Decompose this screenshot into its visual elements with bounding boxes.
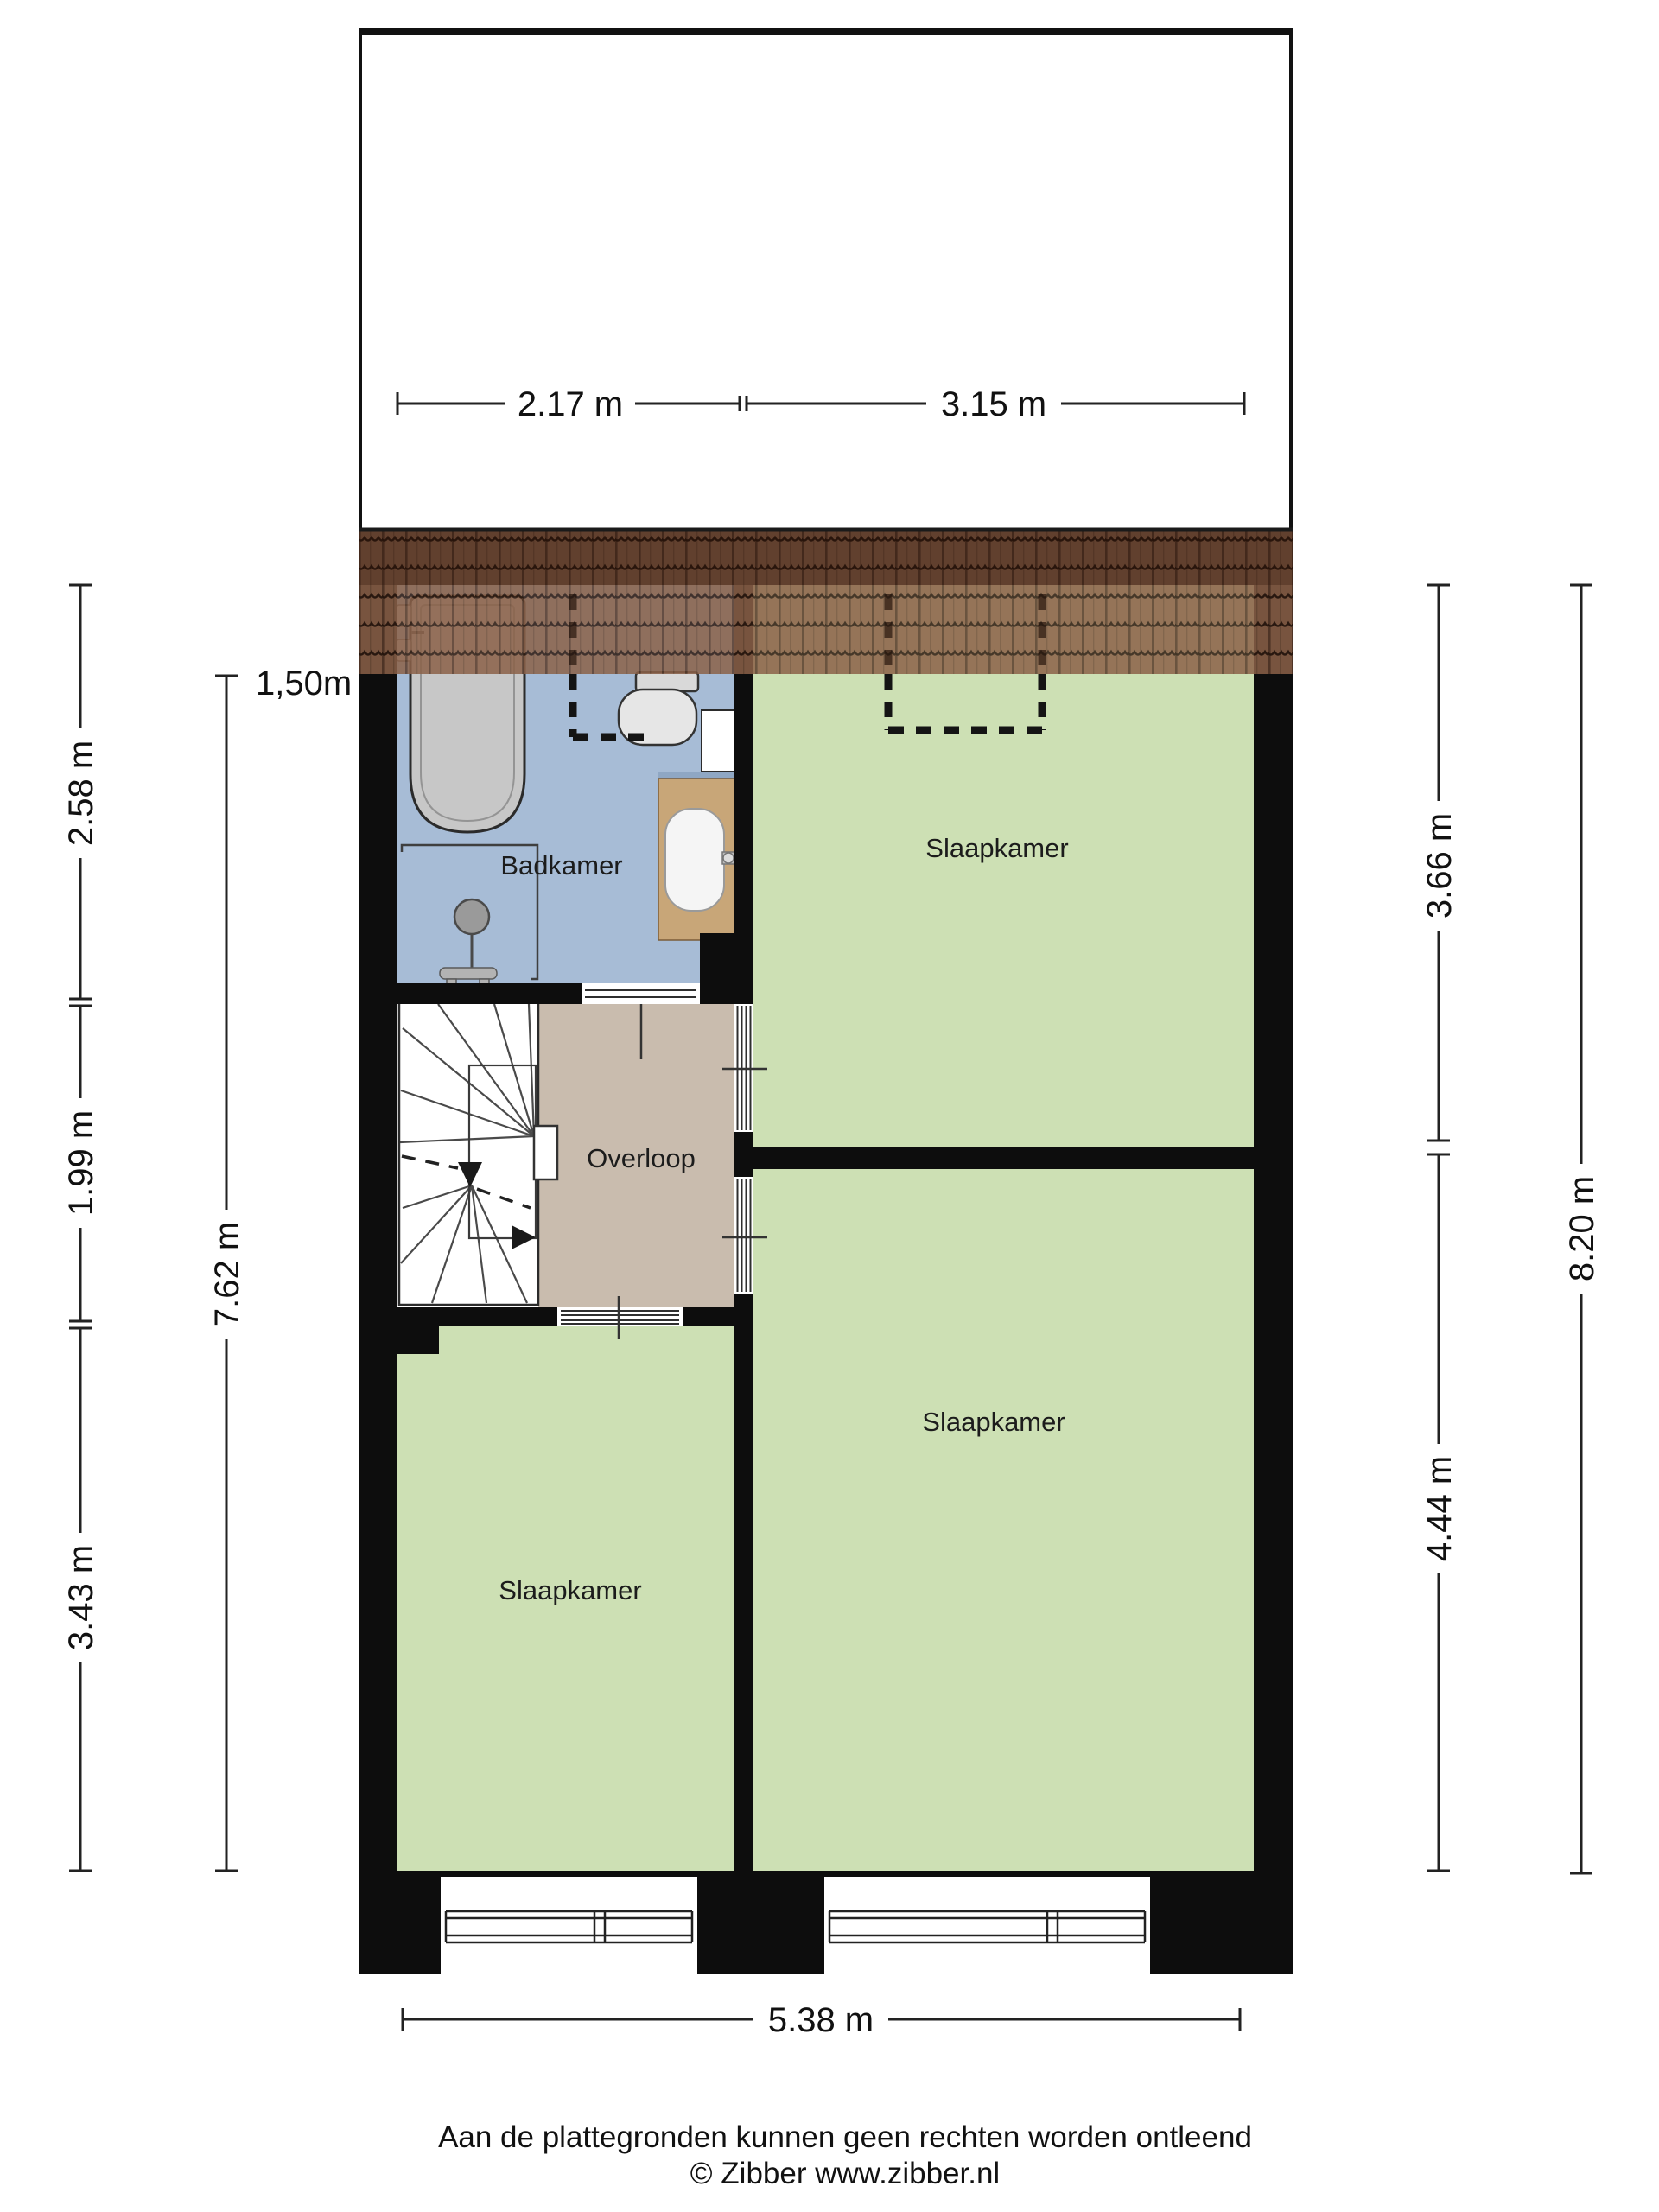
- footer-credit: © Zibber www.zibber.nl: [690, 2157, 1000, 2190]
- wall-exterior-east: [1254, 531, 1293, 1974]
- dim-left-landing: 1.99 m: [62, 1110, 100, 1216]
- roof-upper-shade: [359, 531, 1293, 585]
- room-bedroom-bottom-right-floor: [753, 1169, 1254, 1871]
- top-block-fill: [359, 28, 1293, 531]
- wall-bathroom-corner-block: [700, 933, 753, 983]
- bathroom-niche: [702, 710, 734, 772]
- room-label-bedroom-bottom-left: Slaapkamer: [499, 1575, 641, 1605]
- window-bottom-right: [824, 1877, 1150, 1974]
- dim-bottom-total: 5.38 m: [768, 2001, 874, 2039]
- room-label-bedroom-top-right: Slaapkamer: [925, 833, 1068, 863]
- dim-right-bedroom-bottom: 4.44 m: [1421, 1456, 1459, 1561]
- wall-between-bottom-bedrooms: [734, 1294, 753, 1871]
- wall-bathroom-south: [397, 983, 753, 1004]
- floorplan-canvas: Badkamer Slaapkamer Overloop Slaapkamer …: [0, 0, 1659, 2212]
- dim-right-total: 8.20 m: [1563, 1176, 1601, 1281]
- stair-landing-door: [534, 1126, 557, 1179]
- wall-between-right-bedrooms: [734, 1147, 1254, 1169]
- dim-left-bathroom: 2.58 m: [62, 741, 100, 846]
- dim-left-total: 7.62 m: [208, 1222, 246, 1327]
- wall-notch-block: [397, 1307, 439, 1354]
- roof-strip: [359, 530, 1293, 674]
- dim-top-right: 3.15 m: [941, 385, 1046, 423]
- dim-left-bedroom: 3.43 m: [62, 1545, 100, 1650]
- window-bottom-left: [441, 1877, 697, 1974]
- sink-vanity-icon: [658, 772, 735, 940]
- roof-lower-band: [359, 585, 1293, 674]
- dim-top-left: 2.17 m: [518, 385, 623, 423]
- top-outline-block: [359, 28, 1293, 531]
- room-label-bathroom: Badkamer: [500, 850, 622, 880]
- room-label-landing: Overloop: [587, 1143, 696, 1173]
- dim-right-bedroom-top: 3.66 m: [1421, 813, 1459, 918]
- footer-disclaimer: Aan de plattegronden kunnen geen rechten…: [438, 2120, 1252, 2154]
- wall-exterior-west: [359, 531, 397, 1974]
- room-fills: [397, 585, 1254, 1871]
- room-label-bedroom-bottom-right: Slaapkamer: [922, 1407, 1065, 1437]
- floorplan-page: Badkamer Slaapkamer Overloop Slaapkamer …: [0, 0, 1659, 2212]
- headroom-marker-label: 1,50m: [256, 664, 352, 702]
